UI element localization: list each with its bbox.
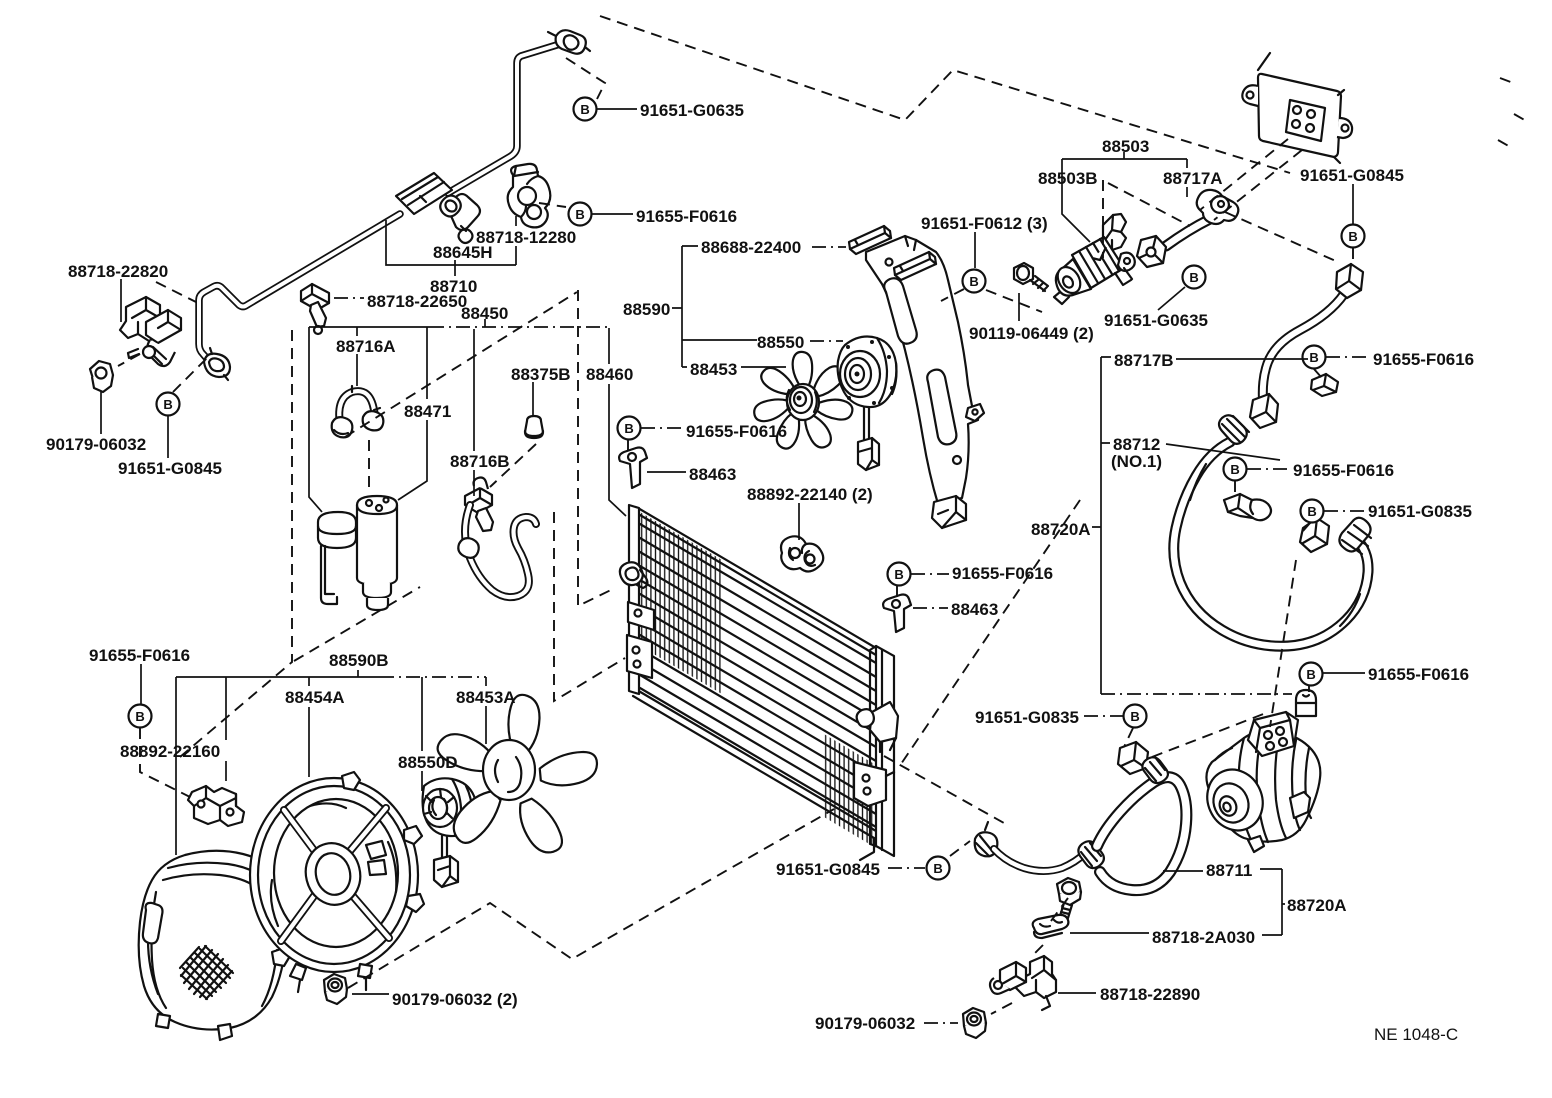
svg-text:88718-22890: 88718-22890 — [1100, 985, 1200, 1004]
svg-text:88688-22400: 88688-22400 — [701, 238, 801, 257]
svg-text:91655-F0616: 91655-F0616 — [1368, 665, 1469, 684]
svg-text:91655-F0616: 91655-F0616 — [686, 422, 787, 441]
svg-text:91651-G0635: 91651-G0635 — [1104, 311, 1208, 330]
svg-text:88718-22650: 88718-22650 — [367, 292, 467, 311]
svg-text:88550: 88550 — [757, 333, 804, 352]
svg-text:90179-06032: 90179-06032 — [46, 435, 146, 454]
svg-text:88453: 88453 — [690, 360, 737, 379]
svg-text:88720A: 88720A — [1287, 896, 1347, 915]
svg-text:88460: 88460 — [586, 365, 633, 384]
svg-text:88503B: 88503B — [1038, 169, 1098, 188]
svg-text:88892-22160: 88892-22160 — [120, 742, 220, 761]
svg-text:90119-06449 (2): 90119-06449 (2) — [969, 324, 1094, 343]
svg-text:88716B: 88716B — [450, 452, 510, 471]
svg-text:91651-G0835: 91651-G0835 — [975, 708, 1079, 727]
svg-text:91655-F0616: 91655-F0616 — [1373, 350, 1474, 369]
svg-text:91651-G0835: 91651-G0835 — [1368, 502, 1472, 521]
svg-text:(NO.1): (NO.1) — [1111, 452, 1162, 471]
svg-text:91651-F0612 (3): 91651-F0612 (3) — [921, 214, 1048, 233]
svg-text:88717A: 88717A — [1163, 169, 1223, 188]
svg-text:91651-G0845: 91651-G0845 — [1300, 166, 1404, 185]
svg-text:88717B: 88717B — [1114, 351, 1174, 370]
svg-text:88454A: 88454A — [285, 688, 345, 707]
svg-text:90179-06032: 90179-06032 — [815, 1014, 915, 1033]
svg-text:91651-G0845: 91651-G0845 — [776, 860, 880, 879]
svg-text:88590B: 88590B — [329, 651, 389, 670]
svg-text:88645H: 88645H — [433, 243, 493, 262]
svg-text:88718-2A030: 88718-2A030 — [1152, 928, 1255, 947]
svg-text:88503: 88503 — [1102, 137, 1149, 156]
svg-text:88892-22140 (2): 88892-22140 (2) — [747, 485, 873, 504]
svg-text:91655-F0616: 91655-F0616 — [1293, 461, 1394, 480]
svg-text:88375B: 88375B — [511, 365, 571, 384]
svg-text:88463: 88463 — [689, 465, 736, 484]
svg-text:90179-06032 (2): 90179-06032 (2) — [392, 990, 518, 1009]
svg-text:NE 1048-C: NE 1048-C — [1374, 1025, 1458, 1044]
svg-text:91651-G0635: 91651-G0635 — [640, 101, 744, 120]
svg-text:88550D: 88550D — [398, 753, 458, 772]
svg-text:88716A: 88716A — [336, 337, 396, 356]
svg-text:91655-F0616: 91655-F0616 — [636, 207, 737, 226]
svg-text:88590: 88590 — [623, 300, 670, 319]
svg-text:91651-G0845: 91651-G0845 — [118, 459, 222, 478]
svg-text:91655-F0616: 91655-F0616 — [89, 646, 190, 665]
svg-text:88711: 88711 — [1206, 861, 1252, 880]
svg-text:91655-F0616: 91655-F0616 — [952, 564, 1053, 583]
svg-text:88453A: 88453A — [456, 688, 516, 707]
svg-text:88463: 88463 — [951, 600, 998, 619]
svg-text:88471: 88471 — [404, 402, 451, 421]
svg-text:88720A: 88720A — [1031, 520, 1091, 539]
svg-text:88718-22820: 88718-22820 — [68, 262, 168, 281]
